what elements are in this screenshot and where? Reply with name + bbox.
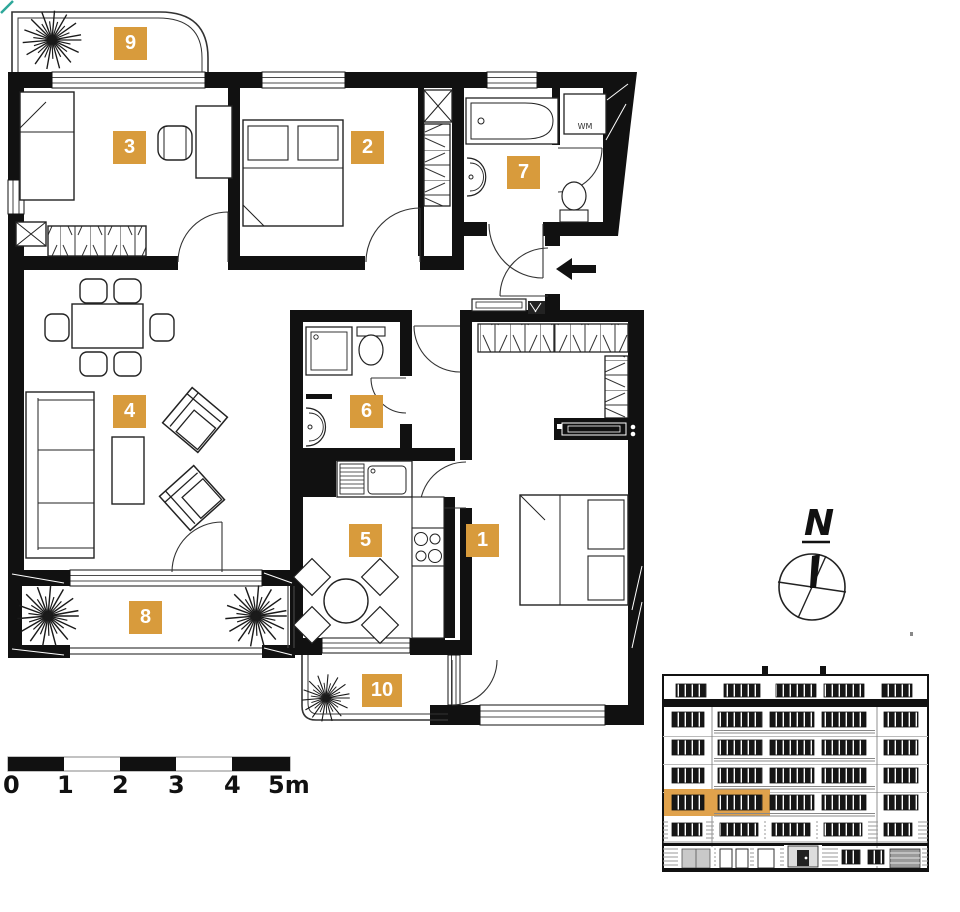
armchair-2 [160, 466, 225, 531]
washing-machine-label: WM [578, 122, 593, 131]
scale-label-5m: 5m [268, 771, 310, 799]
scale-bar: 0 1 2 3 4 5m [3, 757, 310, 799]
room-label-7: 7 [507, 156, 540, 189]
scale-label-4: 4 [224, 771, 241, 799]
scale-label-0: 0 [3, 771, 20, 799]
room-label-2: 2 [351, 131, 384, 164]
scale-label-2: 2 [112, 771, 129, 799]
room-label-10: 10 [362, 674, 402, 707]
room-2-bed [243, 120, 343, 226]
room-label-1: 1 [466, 524, 499, 557]
plant-terrace-right [225, 585, 286, 646]
building-elevation [663, 666, 928, 871]
plant-balcony-9 [23, 11, 82, 69]
room-label-8: 8 [129, 601, 162, 634]
bathroom-6-fixtures [306, 327, 385, 446]
north-label: N [804, 503, 834, 544]
room-1-furniture [478, 324, 644, 605]
plant-terrace-left [17, 585, 78, 646]
shaft-and-wardrobe [424, 90, 452, 206]
floor-plan-page: WM N [0, 0, 960, 912]
entrance-arrow-icon [556, 258, 596, 280]
room-label-4: 4 [113, 395, 146, 428]
living-room-furniture [26, 279, 174, 558]
scale-label-1: 1 [57, 771, 74, 799]
room-label-9: 9 [114, 27, 147, 60]
room-label-3: 3 [113, 131, 146, 164]
room-3-furniture [16, 92, 232, 256]
armchair-1 [163, 388, 228, 453]
balcony-9-outline [12, 12, 208, 72]
stray-dot [910, 632, 913, 636]
room-label-5: 5 [349, 524, 382, 557]
north-compass: N [778, 503, 846, 620]
room-label-6: 6 [350, 395, 383, 428]
scale-label-3: 3 [168, 771, 185, 799]
